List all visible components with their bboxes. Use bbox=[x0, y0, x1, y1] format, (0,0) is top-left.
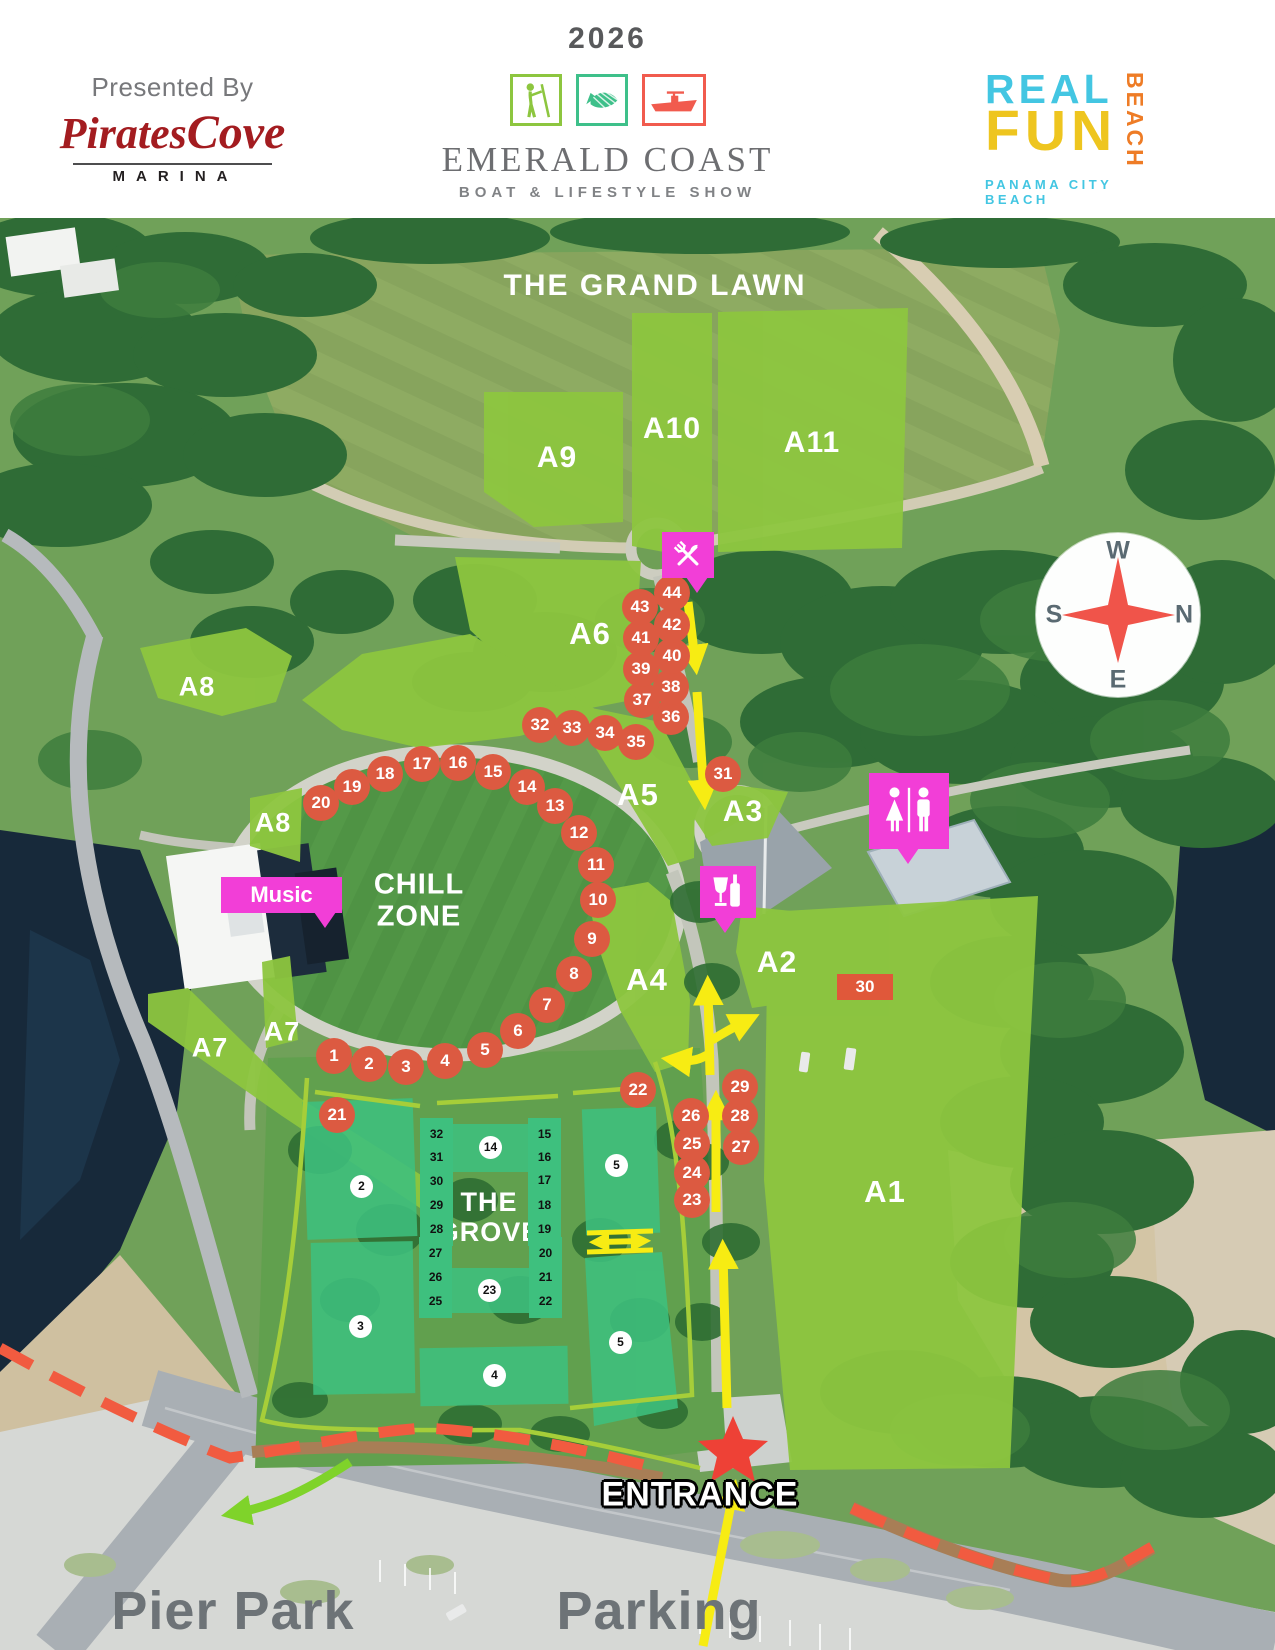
area-label-a6: A6 bbox=[569, 616, 611, 652]
booth-marker-3: 3 bbox=[388, 1049, 424, 1085]
area-label-a8: A8 bbox=[179, 672, 216, 703]
booth-marker-6: 6 bbox=[500, 1013, 536, 1049]
booth-marker-44: 44 bbox=[654, 575, 690, 611]
booth-marker-27: 27 bbox=[723, 1129, 759, 1165]
booth-marker-2: 2 bbox=[351, 1046, 387, 1082]
fish-icon bbox=[576, 74, 628, 126]
marina-text: MARINA bbox=[73, 163, 272, 185]
area-label-a4: A4 bbox=[626, 962, 668, 998]
area-label-a5: A5 bbox=[617, 777, 659, 813]
drinks-callout bbox=[700, 866, 756, 918]
booth-marker-15: 15 bbox=[475, 754, 511, 790]
header: Presented By PiratesCove MARINA 2026 bbox=[0, 0, 1275, 218]
grove-marker-2: 2 bbox=[350, 1175, 373, 1198]
booth-marker-10: 10 bbox=[580, 882, 616, 918]
area-label-a9: A9 bbox=[537, 441, 577, 475]
booth-marker-4: 4 bbox=[427, 1043, 463, 1079]
grove-marker-14: 14 bbox=[479, 1136, 502, 1159]
food-icon bbox=[671, 538, 705, 572]
booth-marker-29: 29 bbox=[722, 1069, 758, 1105]
drinks-icon bbox=[710, 873, 746, 911]
presented-by-text: Presented By bbox=[55, 72, 290, 103]
show-logo: 2026 bbox=[440, 22, 775, 201]
show-subtitle: BOAT & LIFESTYLE SHOW bbox=[440, 184, 775, 201]
boat-icon bbox=[642, 74, 706, 126]
booth-marker-11: 11 bbox=[578, 847, 614, 883]
area-label-a1: A1 bbox=[864, 1174, 906, 1210]
booth-marker-8: 8 bbox=[556, 956, 592, 992]
booth-marker-17: 17 bbox=[404, 746, 440, 782]
area-label-a7: A7 bbox=[192, 1033, 229, 1064]
booth-marker-5: 5 bbox=[467, 1032, 503, 1068]
grove-marker-5: 5 bbox=[609, 1331, 632, 1354]
booth-marker-38: 38 bbox=[653, 669, 689, 705]
presenter-logo: Presented By PiratesCove MARINA bbox=[55, 72, 290, 185]
grove-marker-23: 23 bbox=[478, 1279, 501, 1302]
area-label-a3: A3 bbox=[723, 795, 763, 829]
booth-marker-19: 19 bbox=[334, 769, 370, 805]
grove-marker-25: 25 bbox=[424, 1290, 447, 1313]
rf-fun: FUN bbox=[985, 107, 1117, 155]
grove-marker-5: 5 bbox=[605, 1154, 628, 1177]
music-callout: Music bbox=[221, 877, 342, 913]
restrooms-icon bbox=[880, 785, 938, 837]
booth-marker-9: 9 bbox=[574, 921, 610, 957]
real-fun-beach-logo: REAL FUN BEACH PANAMA CITY BEACH bbox=[985, 72, 1165, 207]
booth-marker-31: 31 bbox=[705, 756, 741, 792]
booth-marker-26: 26 bbox=[673, 1098, 709, 1134]
area-label-a7: A7 bbox=[264, 1017, 301, 1048]
booth-marker-1: 1 bbox=[316, 1038, 352, 1074]
food-callout bbox=[662, 532, 714, 578]
show-logo-icons bbox=[440, 68, 775, 126]
booth-marker-20: 20 bbox=[303, 785, 339, 821]
restrooms-callout bbox=[869, 773, 949, 849]
paddleboard-icon bbox=[510, 74, 562, 126]
booth-marker-14: 14 bbox=[509, 769, 545, 805]
rf-beach-vertical: BEACH bbox=[1123, 72, 1146, 169]
booth-marker-12: 12 bbox=[561, 815, 597, 851]
booth-marker-43: 43 bbox=[622, 589, 658, 625]
marker-layer: 1234567891011121314151617181920212223242… bbox=[0, 0, 1275, 1650]
area-label-a2: A2 bbox=[757, 946, 797, 980]
booth-marker-33: 33 bbox=[554, 710, 590, 746]
booth-marker-16: 16 bbox=[440, 745, 476, 781]
area-label-a8: A8 bbox=[255, 808, 292, 839]
event-map-flyer: W S N E Presented By PiratesCove MARINA … bbox=[0, 0, 1275, 1650]
area-label-a11: A11 bbox=[784, 426, 840, 460]
booth-marker-40: 40 bbox=[654, 638, 690, 674]
grove-marker-4: 4 bbox=[483, 1364, 506, 1387]
booth-marker-35: 35 bbox=[618, 724, 654, 760]
booth-marker-18: 18 bbox=[367, 756, 403, 792]
rf-city: PANAMA CITY BEACH bbox=[985, 177, 1165, 207]
music-label: Music bbox=[250, 882, 312, 908]
year-text: 2026 bbox=[440, 22, 775, 56]
marker-30: 30 bbox=[837, 974, 893, 1000]
show-title: EMERALD COAST bbox=[440, 140, 775, 180]
grove-marker-3: 3 bbox=[349, 1315, 372, 1338]
pirates-cove-logo: PiratesCove bbox=[55, 109, 290, 157]
booth-marker-42: 42 bbox=[654, 607, 690, 643]
booth-marker-21: 21 bbox=[319, 1097, 355, 1133]
booth-marker-32: 32 bbox=[522, 707, 558, 743]
booth-marker-22: 22 bbox=[620, 1072, 656, 1108]
booth-marker-7: 7 bbox=[529, 987, 565, 1023]
area-label-a10: A10 bbox=[643, 412, 701, 446]
grove-marker-22: 22 bbox=[534, 1290, 557, 1313]
